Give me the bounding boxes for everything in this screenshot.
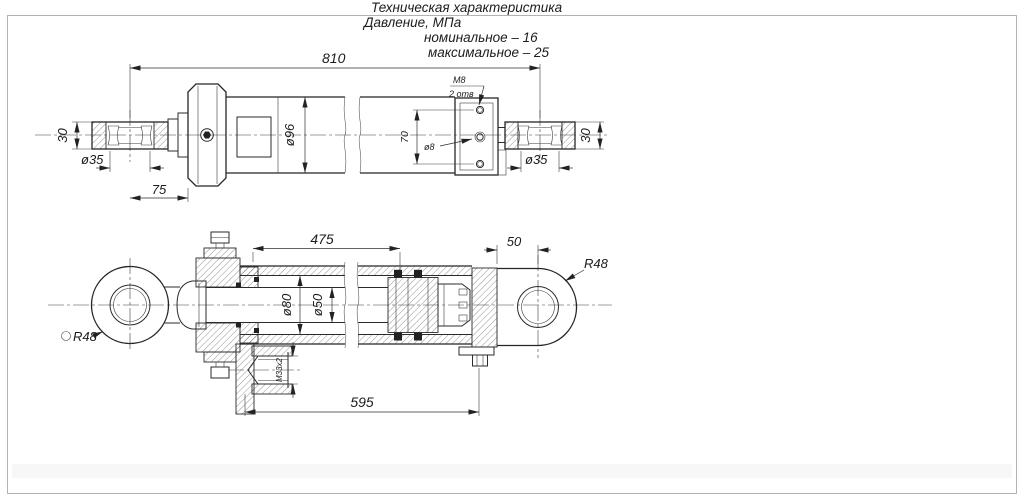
end-cap-plate: [455, 98, 506, 175]
r48-left-callout: R48: [62, 329, 104, 344]
title-heading: Техническая характеристика: [371, 0, 563, 15]
rear-eye-section: [497, 269, 577, 346]
port-boss-top-view: [237, 117, 271, 157]
dim-d35-right: ø35: [525, 152, 548, 167]
title-block: Техническая характеристика Давление, МПа…: [362, 0, 563, 60]
r48-right-callout: R48: [565, 256, 609, 281]
dim-475: 475: [310, 231, 334, 247]
title-nominal: номинальное – 16: [424, 30, 538, 45]
dim-r48-left: R48: [73, 329, 98, 344]
dim-d50: ø50: [310, 293, 325, 316]
gland-bolt-bottom: [211, 367, 229, 378]
dim-d96: ø96: [282, 123, 297, 146]
rear-bolt: [473, 355, 488, 366]
dim-50: 50: [507, 234, 522, 249]
dim-30-right: 30: [578, 128, 593, 143]
watermark-smudge: [12, 464, 1012, 478]
callout-d8: ø8: [424, 142, 435, 152]
title-maximum: максимальное – 25: [428, 45, 550, 60]
m8-callout: М8 2 отв: [448, 75, 484, 105]
callout-m8: М8: [453, 75, 466, 85]
dim-75: 75: [152, 182, 167, 197]
dim-r48-right: R48: [584, 256, 609, 271]
dim-d35-left: ø35: [81, 152, 104, 167]
rear-cap: [459, 268, 497, 366]
dim-70: 70: [399, 131, 411, 143]
top-view: 810 30 ø35 75 ø96 М8 2 отв ø8: [35, 50, 608, 202]
dim-595: 595: [350, 394, 374, 410]
engineering-drawing: Техническая характеристика Давление, МПа…: [0, 0, 1024, 501]
drawing-frame: [8, 16, 1017, 494]
bottom-view: М33х2 4: [48, 231, 612, 416]
callout-2-holes: 2 отв: [448, 89, 474, 99]
d8-callout: ø8: [424, 139, 472, 152]
drawing-sheet: Техническая характеристика Давление, МПа…: [0, 0, 1024, 501]
dim-810: 810: [322, 50, 346, 66]
title-param: Давление, МПа: [362, 15, 462, 30]
dim-30-left: 30: [55, 128, 70, 143]
dim-m33x2: М33х2: [275, 357, 284, 382]
dim-d80: ø80: [279, 293, 294, 316]
